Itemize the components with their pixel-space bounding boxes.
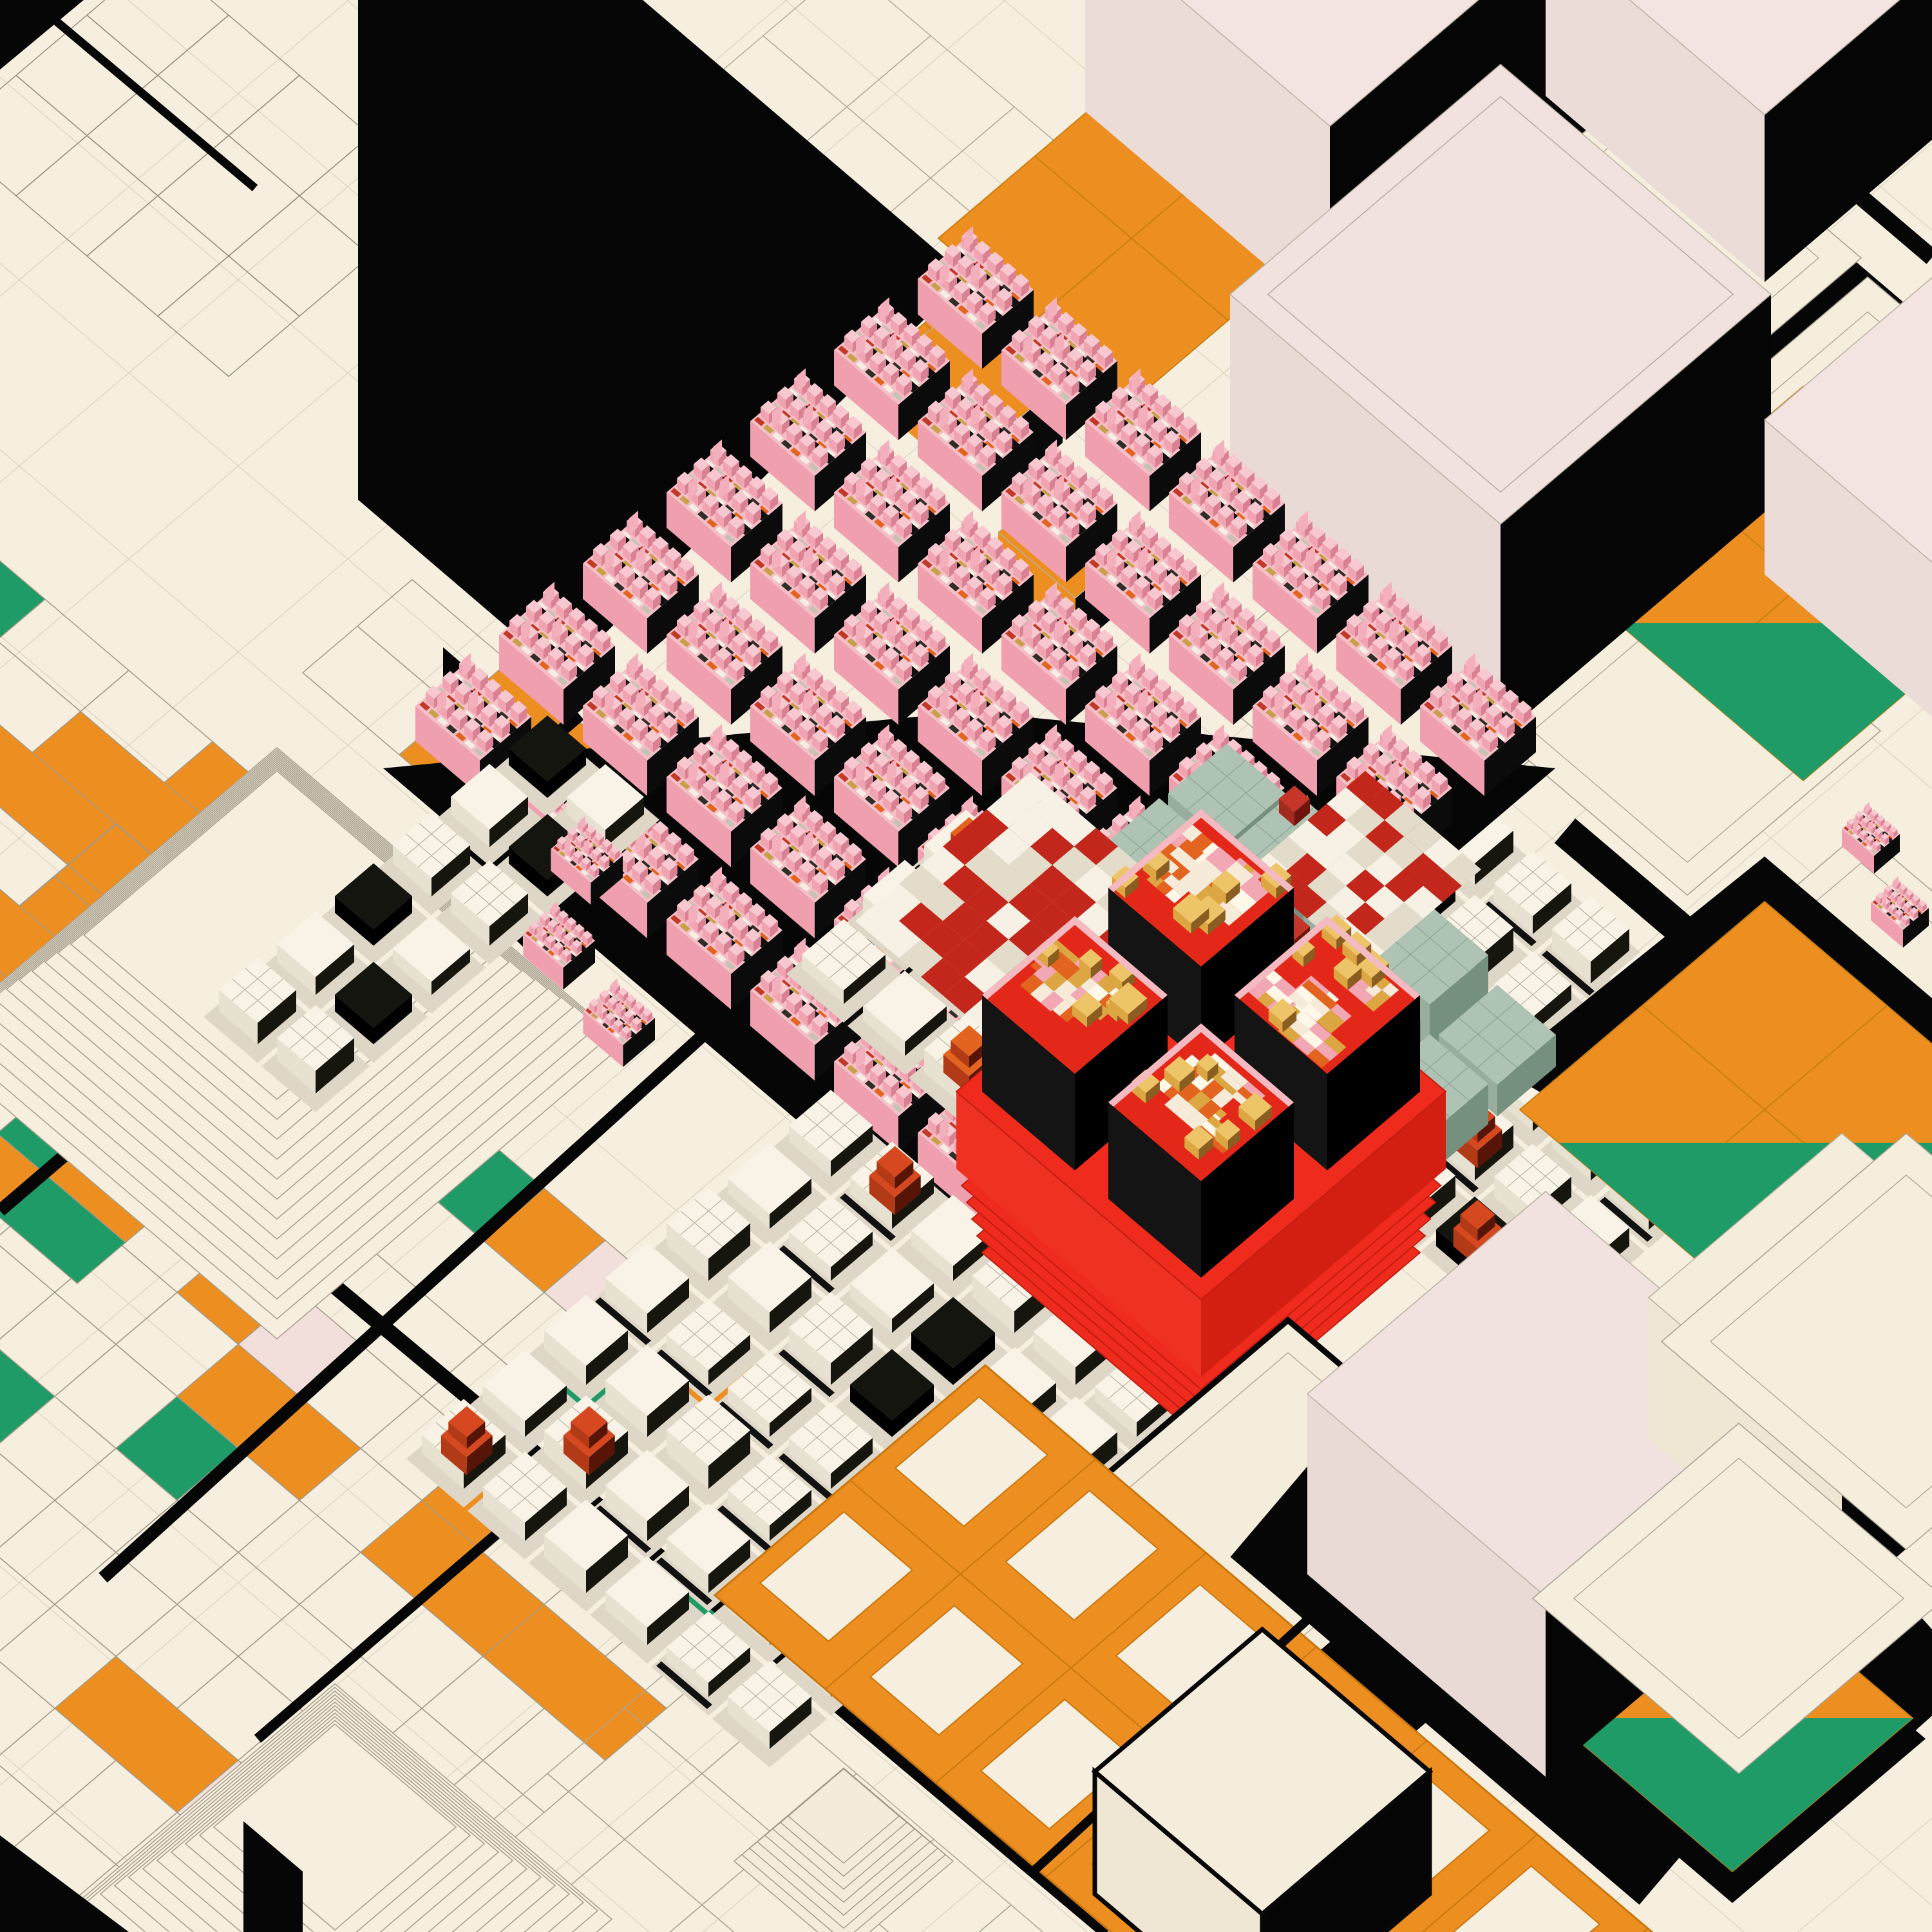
isometric-city-scene bbox=[0, 0, 1932, 1932]
artwork-canvas bbox=[0, 0, 1932, 1932]
